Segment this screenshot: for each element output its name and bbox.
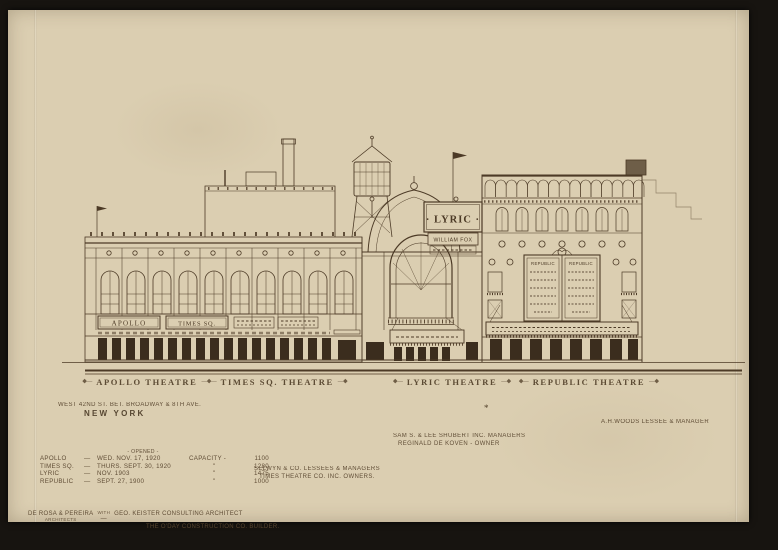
opened-cell: THURS. SEPT. 30, 1920 [97, 463, 189, 471]
republic-sign-text-left: REPUBLIC [531, 261, 555, 266]
republic-sign-panel: REPUBLIC REPUBLIC [524, 248, 600, 321]
lyric-billboard-sign: · LYRIC · WILLIAM FOX [424, 152, 482, 254]
adjacent-building-outline [642, 180, 702, 219]
selwyn-managers-line: SELWYN & CO. LESSEES & MANAGERS [254, 465, 380, 473]
builder-line: THE O'DAY CONSTRUCTION CO. BUILDER. [146, 524, 279, 531]
consulting-architect: GEO. KEISTER CONSULTING ARCHITECT [114, 511, 242, 518]
dash: — [84, 470, 97, 478]
with-label: WITH [97, 511, 110, 516]
dash: — [84, 478, 97, 486]
republic-theatre-label: REPUBLIC THEATRE [533, 377, 645, 387]
republic-arcade [485, 180, 644, 197]
theatre-name-cell: LYRIC [40, 470, 84, 478]
theatre-name-cell: APOLLO [40, 455, 84, 463]
theatre-name-cell: TIMES SQ. [40, 463, 84, 471]
opened-cell: WED. NOV. 17, 1920 [97, 455, 189, 463]
ditto-mark: " [189, 463, 239, 471]
woods-manager-line: A.H.WOODS LESSEE & MANAGER [601, 418, 709, 426]
table-row: TIMES SQ. — THURS. SEPT. 30, 1920 " 1280 [40, 463, 269, 471]
lyric-theatre-label: LYRIC THEATRE [407, 377, 497, 387]
capacity-label: CAPACITY - [189, 455, 239, 463]
ditto-mark: " [189, 478, 239, 486]
selwyn-note: SELWYN & CO. LESSEES & MANAGERS TIMES TH… [254, 465, 380, 481]
address-line: WEST 42ND ST. BET. BROADWAY & 8TH AVE. [58, 401, 201, 409]
ornament: —◆ [497, 379, 515, 385]
stats-table: - OPENED - APOLLO — WED. NOV. 17, 1920 C… [40, 449, 269, 485]
table-row: APOLLO — WED. NOV. 17, 1920 CAPACITY - 1… [40, 455, 269, 463]
rooftop-structures [205, 136, 392, 237]
ornament: —◆ [645, 379, 663, 385]
credits-block: DE ROSA & PEREIRA ARCHITECTS WITH — GEO.… [28, 511, 279, 531]
times-sq-marquee-sign: TIMES SQ. [178, 321, 216, 328]
theatre-name-cell: REPUBLIC [40, 478, 84, 486]
marquee-sign-band: APOLLO TIMES SQ. [98, 316, 330, 333]
opened-cell: SEPT. 27, 1900 [97, 478, 189, 486]
building-labels-left: ◆— APOLLO THEATRE —◆— TIMES SQ. THEATRE … [96, 377, 334, 387]
city-label: NEW YORK [84, 410, 201, 418]
lyric-sign-text: · LYRIC · [426, 215, 480, 226]
republic-facade: REPUBLIC REPUBLIC [482, 160, 702, 362]
dash: — [84, 463, 97, 471]
william-fox-sign-text: WILLIAM FOX [434, 238, 473, 244]
apollo-marquee-sign: APOLLO [112, 320, 147, 328]
ornament: —◆ [334, 379, 352, 385]
lyric-facade: · LYRIC · WILLIAM FOX [362, 152, 482, 362]
table-row: LYRIC — NOV. 1903 " 1475 [40, 470, 269, 478]
architects-sub: ARCHITECTS [45, 518, 77, 523]
ornament: ◆— [389, 379, 407, 385]
apollo-windows [101, 271, 353, 314]
water-tower [352, 136, 392, 237]
dash: — [84, 455, 97, 463]
republic-upper-windows [496, 208, 628, 232]
ditto-mark: " [189, 470, 239, 478]
capacity-cell: 1280 [239, 463, 269, 471]
apollo-ground-doors [98, 338, 356, 360]
shubert-managers-line: SAM S. & LEE SHUBERT INC. MANAGERS [393, 432, 525, 440]
chimney [282, 139, 296, 186]
address-block: WEST 42ND ST. BET. BROADWAY & 8TH AVE. N… [58, 401, 201, 418]
dekoven-owner-line: REGINALD DE KOVEN - OWNER [398, 440, 525, 448]
ornament: ◆— [79, 379, 97, 385]
table-row: REPUBLIC — SEPT. 27, 1900 " 1000 [40, 478, 269, 486]
shubert-note: SAM S. & LEE SHUBERT INC. MANAGERS REGIN… [393, 432, 525, 448]
asterisk-mark: * [484, 403, 489, 413]
dash: — [101, 516, 107, 523]
apollo-theatre-label: APOLLO THEATRE [96, 377, 197, 387]
republic-ground-doors [490, 339, 638, 360]
lyric-doors [366, 342, 478, 361]
ornament: ◆— [515, 379, 533, 385]
ornament: —◆— [197, 379, 220, 385]
times-sq-theatre-label: TIMES SQ. THEATRE [221, 377, 334, 387]
woods-note: A.H.WOODS LESSEE & MANAGER [601, 418, 709, 426]
capacity-cell: 1475 [239, 470, 269, 478]
times-owners-line: TIMES THEATRE CO. INC. OWNERS. [254, 473, 380, 481]
ground-lines [62, 363, 745, 375]
capacity-cell: 1000 [239, 478, 269, 486]
opened-cell: NOV. 1903 [97, 470, 189, 478]
capacity-cell: 1100 [239, 455, 269, 463]
apollo-times-facade: APOLLO TIMES SQ. [85, 206, 362, 362]
republic-sign-text-right: REPUBLIC [569, 261, 593, 266]
building-labels-right: ◆— LYRIC THEATRE —◆ ◆— REPUBLIC THEATRE … [398, 377, 654, 387]
scanned-architectural-drawing: { "colors": { "paper": "#d8cbad", "ink":… [0, 0, 778, 550]
